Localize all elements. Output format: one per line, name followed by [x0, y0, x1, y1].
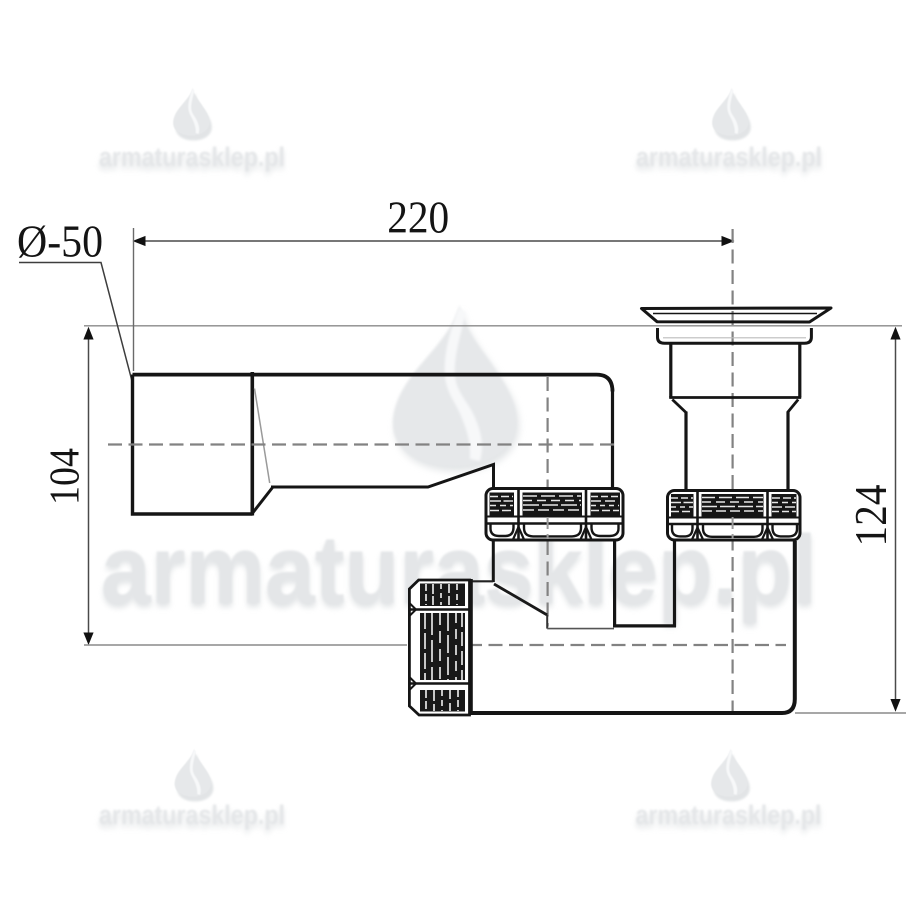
svg-text:armaturasklep.pl: armaturasklep.pl [636, 800, 822, 830]
svg-text:armaturasklep.pl: armaturasklep.pl [99, 142, 285, 172]
svg-text:armaturasklep.pl: armaturasklep.pl [636, 142, 822, 172]
svg-text:Ø-50: Ø-50 [17, 217, 103, 267]
svg-text:220: 220 [387, 193, 449, 243]
svg-text:104: 104 [43, 448, 89, 505]
svg-text:armaturasklep.pl: armaturasklep.pl [99, 800, 285, 830]
svg-text:124: 124 [845, 485, 896, 547]
